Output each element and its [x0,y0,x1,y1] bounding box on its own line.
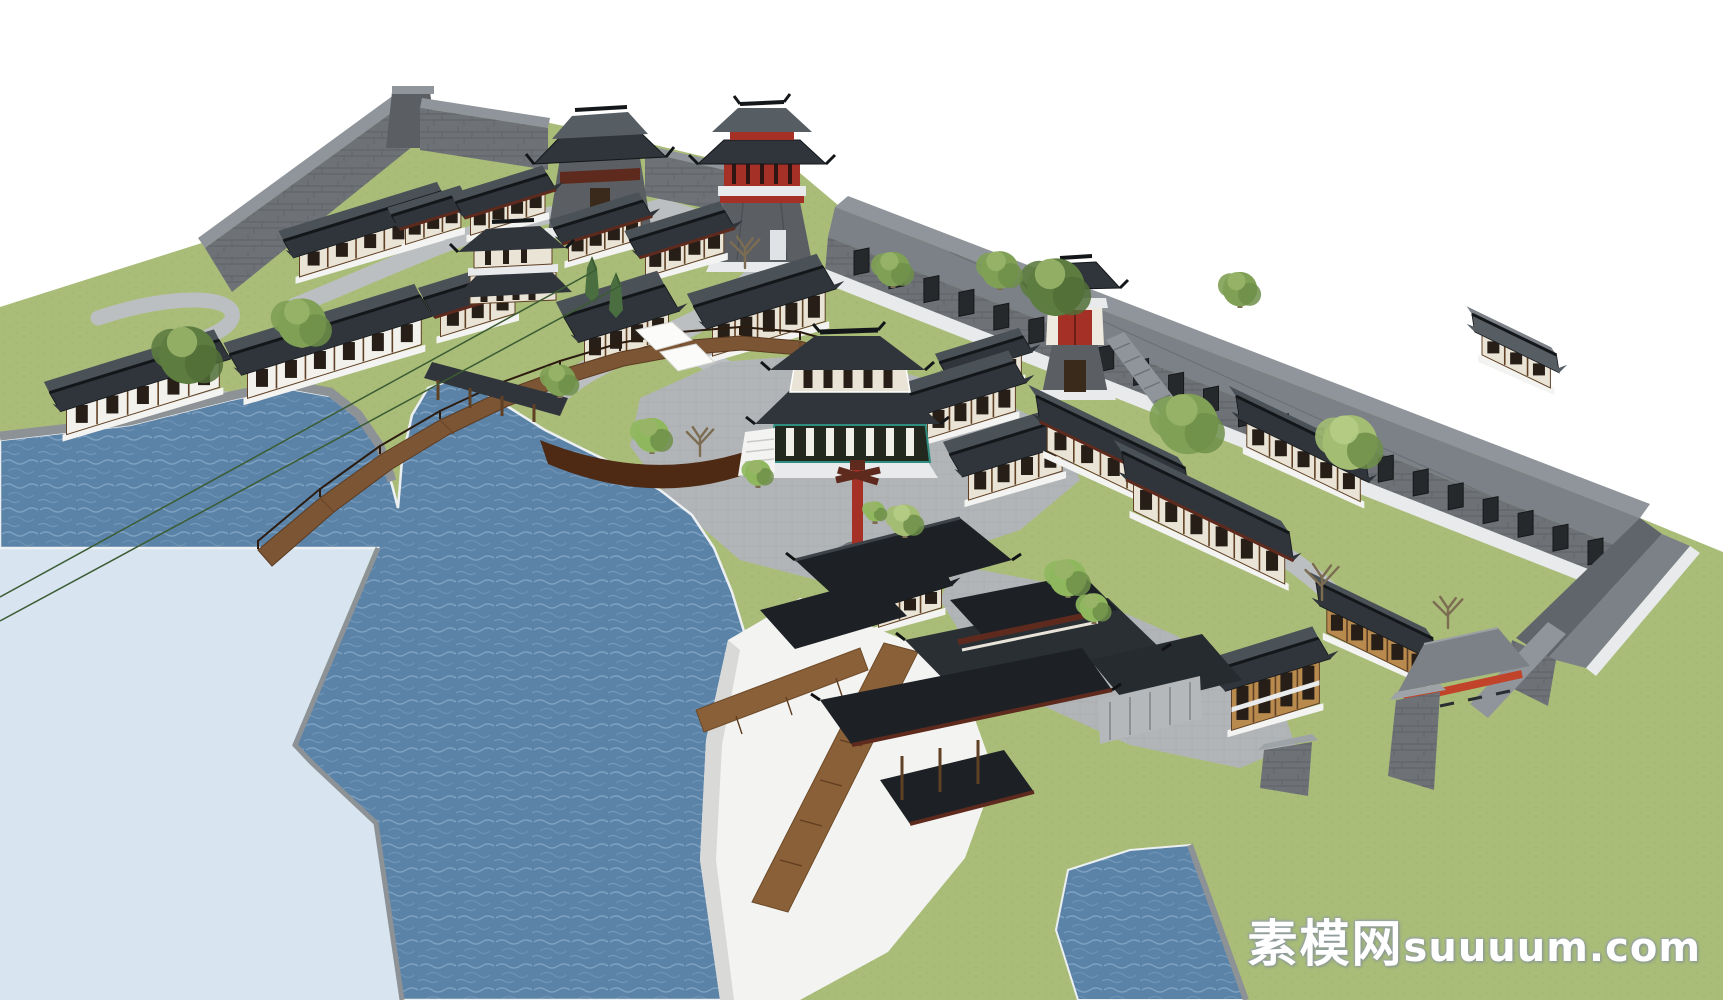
corner-tower-south [1388,692,1440,790]
corner-tower-west [1260,742,1312,796]
watermark-domain: suuuum.com [1404,925,1701,971]
scene-svg [0,0,1723,1000]
render-viewport: 素模网suuuum.com [0,0,1723,1000]
watermark-chinese: 素模网 [1248,904,1404,976]
watermark: 素模网suuuum.com [1248,904,1701,976]
